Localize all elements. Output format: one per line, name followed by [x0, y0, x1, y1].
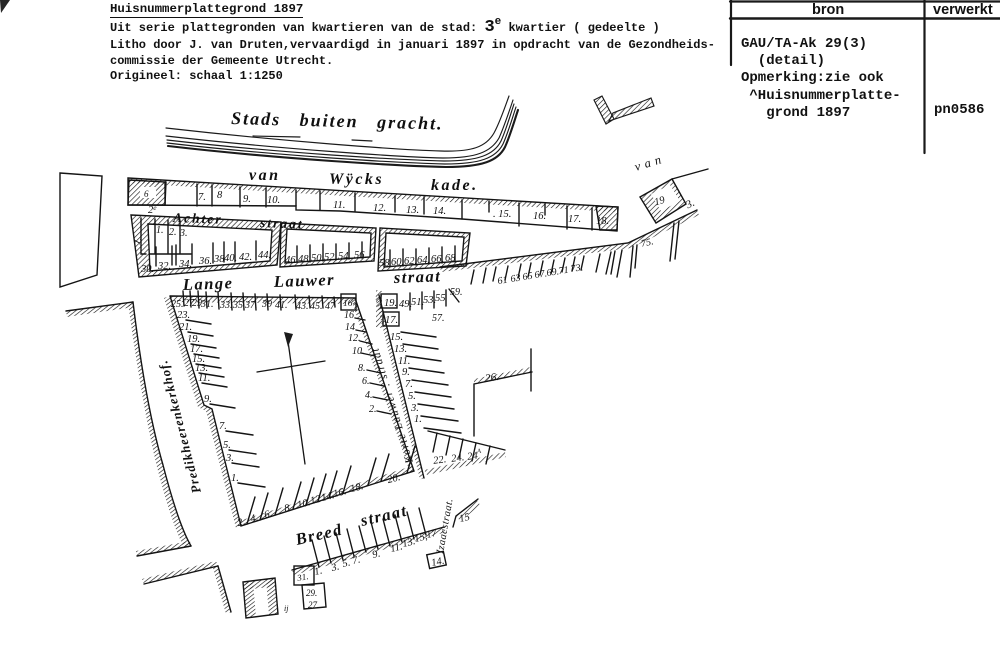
- svg-text:ij: ij: [284, 604, 289, 613]
- svg-text:17.: 17.: [385, 315, 398, 326]
- svg-text:19.: 19.: [384, 298, 397, 309]
- svg-text:14.: 14.: [433, 206, 446, 217]
- svg-text:5.: 5.: [223, 440, 231, 451]
- svg-text:21.: 21.: [179, 322, 192, 333]
- svg-text:6.: 6.: [263, 508, 273, 521]
- svg-text:30.: 30.: [140, 264, 154, 275]
- svg-text:van: van: [249, 167, 281, 184]
- svg-text:7.: 7.: [219, 421, 227, 432]
- svg-text:2.: 2.: [236, 516, 246, 529]
- svg-text:3.: 3.: [410, 403, 419, 414]
- svg-text:41.: 41.: [275, 300, 288, 311]
- svg-text:straat: straat: [392, 266, 441, 287]
- svg-text:46: 46: [285, 255, 296, 266]
- svg-text:71: 71: [558, 265, 569, 277]
- svg-text:4.: 4.: [249, 512, 259, 525]
- svg-text:75.: 75.: [640, 236, 655, 249]
- svg-text:9.: 9.: [243, 194, 251, 205]
- svg-text:31.: 31.: [200, 299, 214, 310]
- svg-text:kade.: kade.: [431, 177, 479, 194]
- svg-text:Lauwer: Lauwer: [272, 270, 335, 291]
- svg-text:73.: 73.: [570, 262, 584, 275]
- svg-text:31.: 31.: [295, 571, 309, 583]
- svg-text:8.: 8.: [358, 363, 366, 374]
- svg-text:60.: 60.: [391, 257, 404, 268]
- svg-text:2.: 2.: [169, 227, 177, 238]
- svg-text:3.: 3.: [329, 561, 340, 574]
- svg-text:55: 55: [435, 293, 446, 304]
- svg-text:5.: 5.: [408, 391, 416, 402]
- svg-text:7.: 7.: [405, 379, 413, 390]
- svg-text:16.: 16.: [332, 486, 347, 500]
- svg-text:16.: 16.: [533, 211, 546, 222]
- svg-text:1.: 1.: [313, 565, 323, 578]
- svg-text:26.: 26.: [484, 371, 500, 385]
- svg-text:1.: 1.: [414, 414, 422, 425]
- svg-text:27.: 27.: [308, 600, 319, 610]
- svg-text:1.: 1.: [156, 225, 164, 236]
- svg-text:11.: 11.: [333, 200, 345, 211]
- svg-text:61: 61: [497, 275, 508, 287]
- svg-text:10.: 10.: [352, 346, 365, 357]
- svg-text:1.: 1.: [231, 473, 239, 484]
- svg-text:18.: 18.: [349, 481, 364, 495]
- svg-text:64.: 64.: [417, 255, 430, 266]
- svg-text:6: 6: [144, 189, 149, 199]
- svg-text:39: 39: [261, 299, 272, 310]
- svg-text:44.: 44.: [258, 250, 271, 261]
- svg-text:18.: 18.: [596, 216, 609, 227]
- svg-text:3.: 3.: [683, 197, 696, 212]
- svg-text:van: van: [633, 151, 667, 174]
- svg-text:11.: 11.: [398, 356, 410, 367]
- svg-text:. 15.: . 15.: [493, 209, 511, 220]
- svg-text:35: 35: [232, 300, 243, 311]
- svg-text:37.: 37.: [244, 300, 258, 311]
- svg-text:3.: 3.: [225, 453, 234, 464]
- svg-text:20.: 20.: [386, 472, 401, 486]
- svg-text:4.: 4.: [365, 390, 373, 401]
- svg-text:66.: 66.: [431, 254, 444, 265]
- svg-text:2.: 2.: [369, 404, 377, 415]
- svg-text:8: 8: [217, 190, 223, 201]
- svg-text:11.: 11.: [198, 373, 210, 384]
- svg-text:48.: 48.: [298, 254, 311, 265]
- svg-text:9.: 9.: [402, 367, 410, 378]
- svg-text:47: 47: [325, 301, 336, 312]
- svg-text:34.: 34.: [178, 259, 192, 270]
- svg-text:Wÿcks: Wÿcks: [329, 171, 384, 188]
- svg-text:17.: 17.: [568, 214, 581, 225]
- svg-text:52.: 52.: [324, 252, 337, 263]
- svg-text:29.: 29.: [306, 588, 317, 598]
- svg-text:56.: 56.: [354, 250, 367, 261]
- svg-text:40.: 40.: [224, 253, 237, 264]
- svg-text:57.: 57.: [432, 313, 445, 324]
- svg-text:16: 16: [343, 299, 353, 309]
- svg-text:22.: 22.: [433, 454, 448, 467]
- svg-text:straat: straat: [259, 215, 304, 232]
- svg-text:13.: 13.: [394, 344, 407, 355]
- svg-text:Stads buiten gracht.: Stads buiten gracht.: [231, 108, 444, 134]
- svg-text:6.: 6.: [362, 376, 370, 387]
- svg-text:43.: 43.: [296, 301, 309, 312]
- svg-text:Achter: Achter: [172, 210, 223, 227]
- svg-text:25.: 25.: [171, 299, 184, 310]
- svg-text:12.: 12.: [348, 333, 361, 344]
- svg-text:50.: 50.: [311, 253, 324, 264]
- svg-text:A: A: [476, 448, 482, 456]
- svg-text:54.: 54.: [338, 251, 351, 262]
- svg-text:63: 63: [510, 273, 521, 285]
- svg-text:8.: 8.: [283, 502, 293, 515]
- svg-text:14: 14: [345, 322, 355, 333]
- svg-text:45.: 45.: [310, 301, 323, 312]
- svg-text:3.: 3.: [179, 228, 188, 239]
- svg-text:13.: 13.: [406, 205, 419, 216]
- svg-text:10.: 10.: [267, 195, 280, 206]
- svg-text:68: 68: [445, 253, 456, 264]
- svg-text:36.: 36.: [198, 256, 212, 267]
- svg-text:32.: 32.: [157, 261, 171, 272]
- svg-text:42.: 42.: [239, 252, 252, 263]
- svg-text:straat: straat: [358, 501, 410, 530]
- svg-text:23.: 23.: [177, 310, 190, 321]
- svg-text:58: 58: [379, 258, 390, 269]
- svg-text:16: 16: [344, 310, 354, 321]
- svg-text:62.: 62.: [404, 256, 417, 267]
- svg-text:5.: 5.: [341, 557, 351, 570]
- svg-text:9.: 9.: [204, 394, 212, 405]
- svg-text:2e: 2e: [148, 203, 157, 216]
- svg-text:12.: 12.: [373, 203, 386, 214]
- svg-text:7.: 7.: [198, 192, 206, 203]
- svg-text:15.: 15.: [390, 332, 403, 343]
- svg-text:33.: 33.: [219, 300, 233, 311]
- svg-text:65: 65: [522, 271, 533, 283]
